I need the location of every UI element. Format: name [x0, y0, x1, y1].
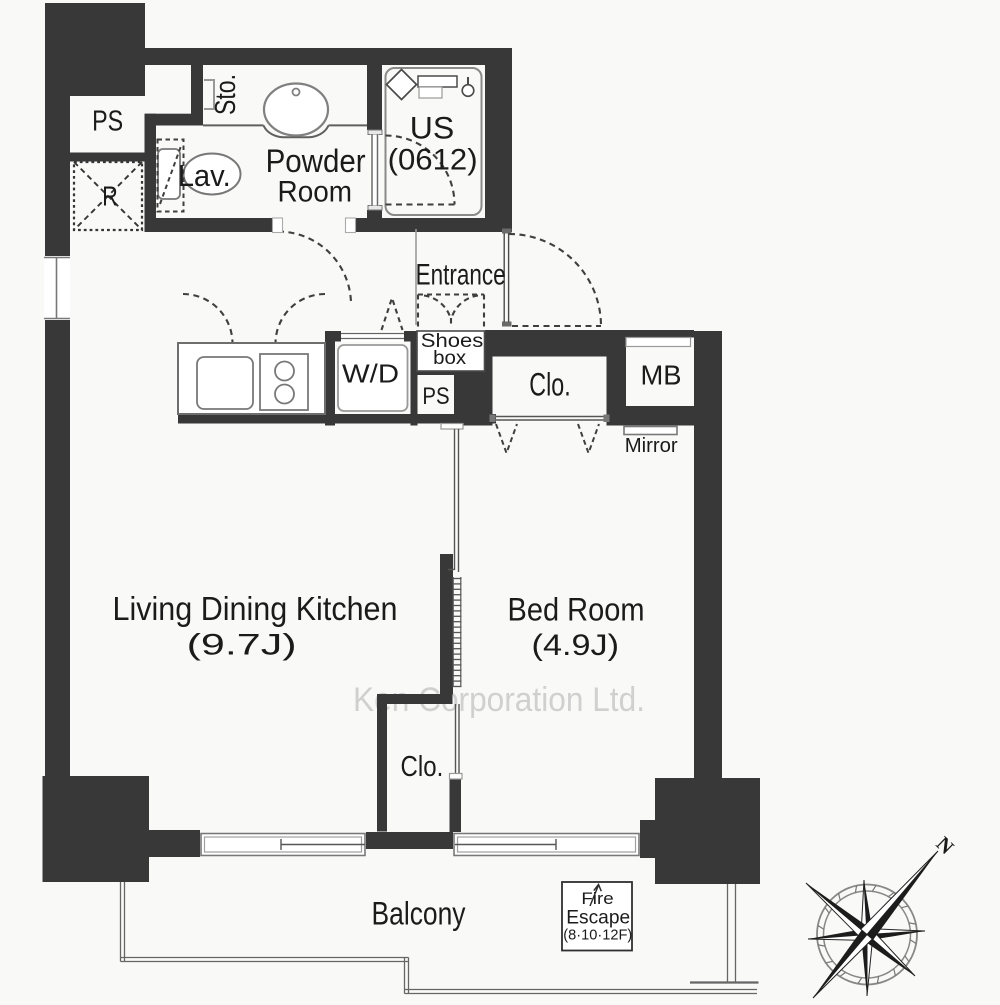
- svg-text:Living Dining Kitchen: Living Dining Kitchen: [113, 590, 398, 627]
- svg-text:N: N: [932, 833, 958, 859]
- svg-text:Lav.: Lav.: [178, 158, 231, 193]
- svg-text:US: US: [410, 110, 455, 146]
- svg-text:Sto.: Sto.: [210, 74, 242, 115]
- svg-text:Balcony: Balcony: [372, 896, 466, 932]
- svg-text:Fire: Fire: [581, 889, 613, 908]
- svg-text:Bed Room: Bed Room: [508, 592, 645, 628]
- svg-text:(9.7J): (9.7J): [187, 629, 297, 662]
- svg-text:Entrance: Entrance: [416, 259, 506, 292]
- svg-text:(4.9J): (4.9J): [532, 629, 620, 662]
- svg-text:Mirror: Mirror: [625, 434, 678, 457]
- svg-text:(8·10·12F): (8·10·12F): [563, 927, 632, 944]
- svg-text:(0612): (0612): [388, 144, 478, 177]
- svg-text:PS: PS: [422, 383, 449, 410]
- svg-text:Room: Room: [278, 176, 353, 209]
- svg-text:PS: PS: [92, 106, 123, 138]
- svg-text:Powder: Powder: [266, 143, 366, 179]
- svg-text:Escape: Escape: [566, 907, 630, 929]
- svg-text:box: box: [433, 348, 467, 369]
- svg-text:R: R: [102, 181, 118, 212]
- svg-text:W/D: W/D: [342, 361, 399, 389]
- svg-text:Clo.: Clo.: [401, 751, 444, 783]
- svg-text:Clo.: Clo.: [529, 366, 570, 402]
- svg-text:MB: MB: [641, 360, 682, 391]
